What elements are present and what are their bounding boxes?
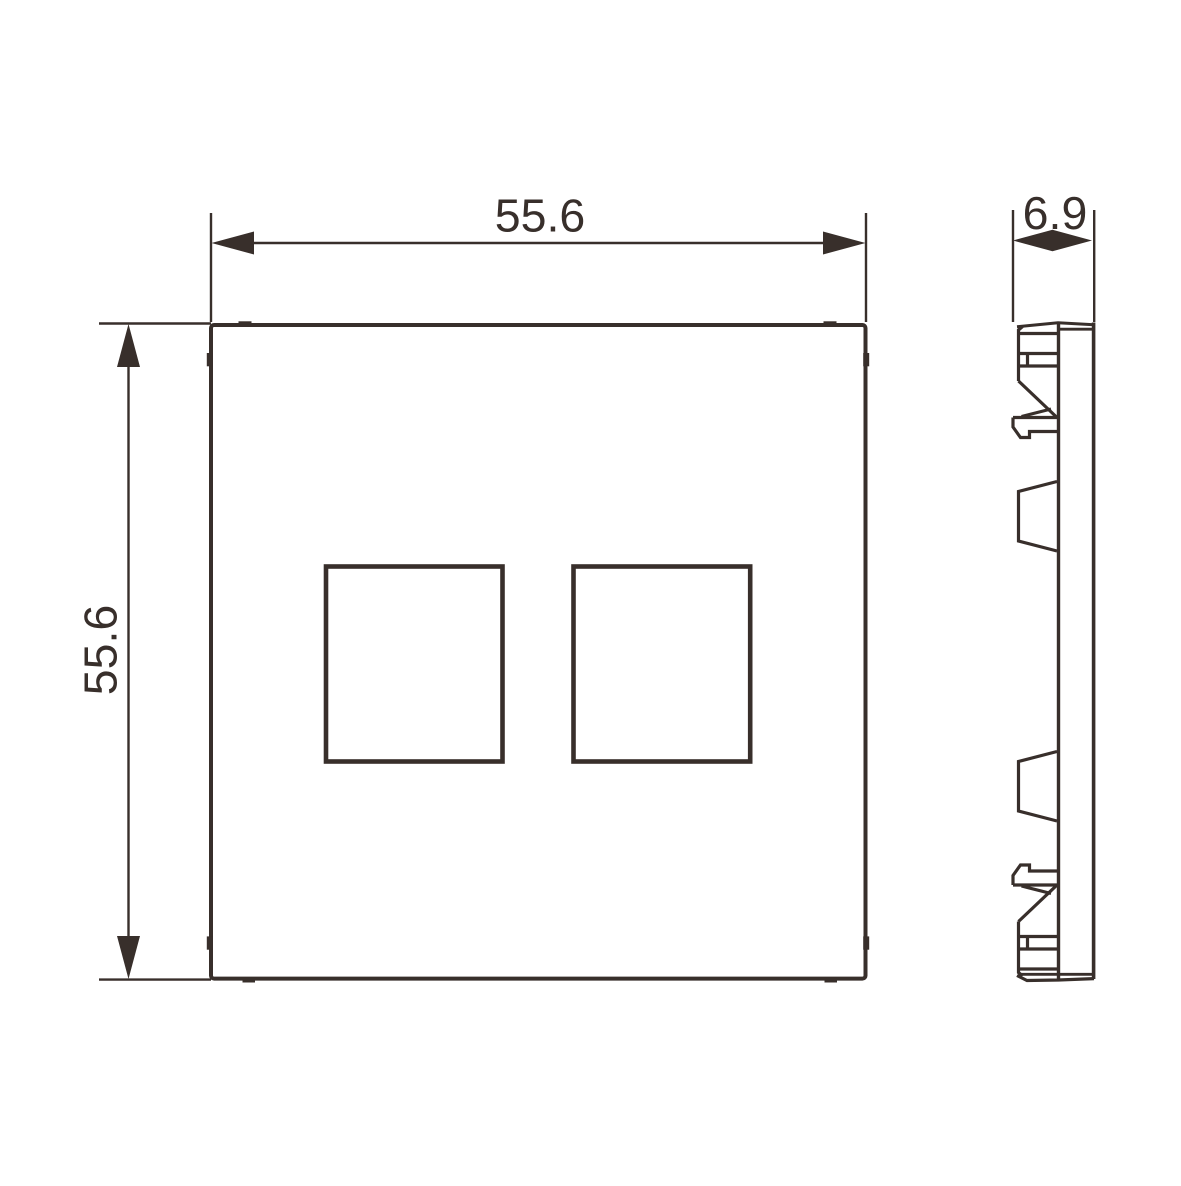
- svg-text:55.6: 55.6: [495, 190, 586, 242]
- svg-text:55.6: 55.6: [75, 605, 127, 696]
